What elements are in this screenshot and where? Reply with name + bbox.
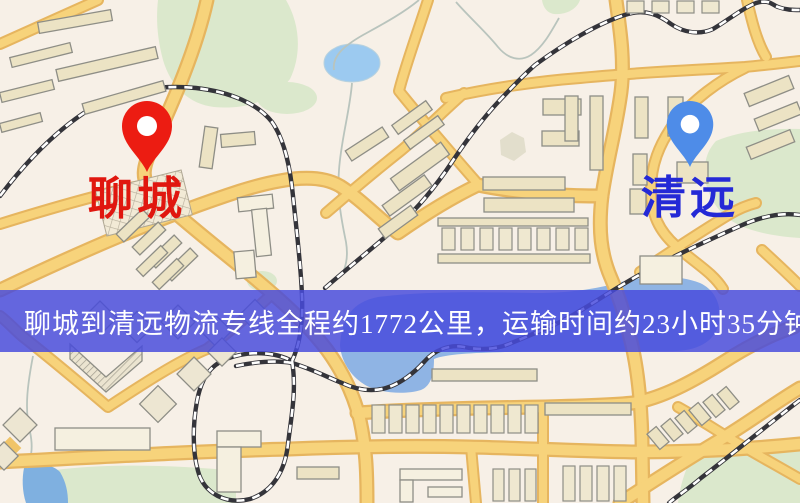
route-info-banner: 聊城到清远物流专线全程约1772公里，运输时间约23小时35分钟. [0,290,800,352]
origin-pin-hole [137,116,157,136]
destination-city-label: 清远 [641,176,739,221]
map-graphic [0,0,800,503]
destination-pin-hole [681,115,700,134]
lake [324,44,380,82]
origin-city-label: 聊城 [88,177,186,222]
map-canvas[interactable]: 聊城 清远 聊城到清远物流专线全程约1772公里，运输时间约23小时35分钟. [0,0,800,503]
route-info-text: 聊城到清远物流专线全程约1772公里，运输时间约23小时35分钟. [24,302,800,341]
